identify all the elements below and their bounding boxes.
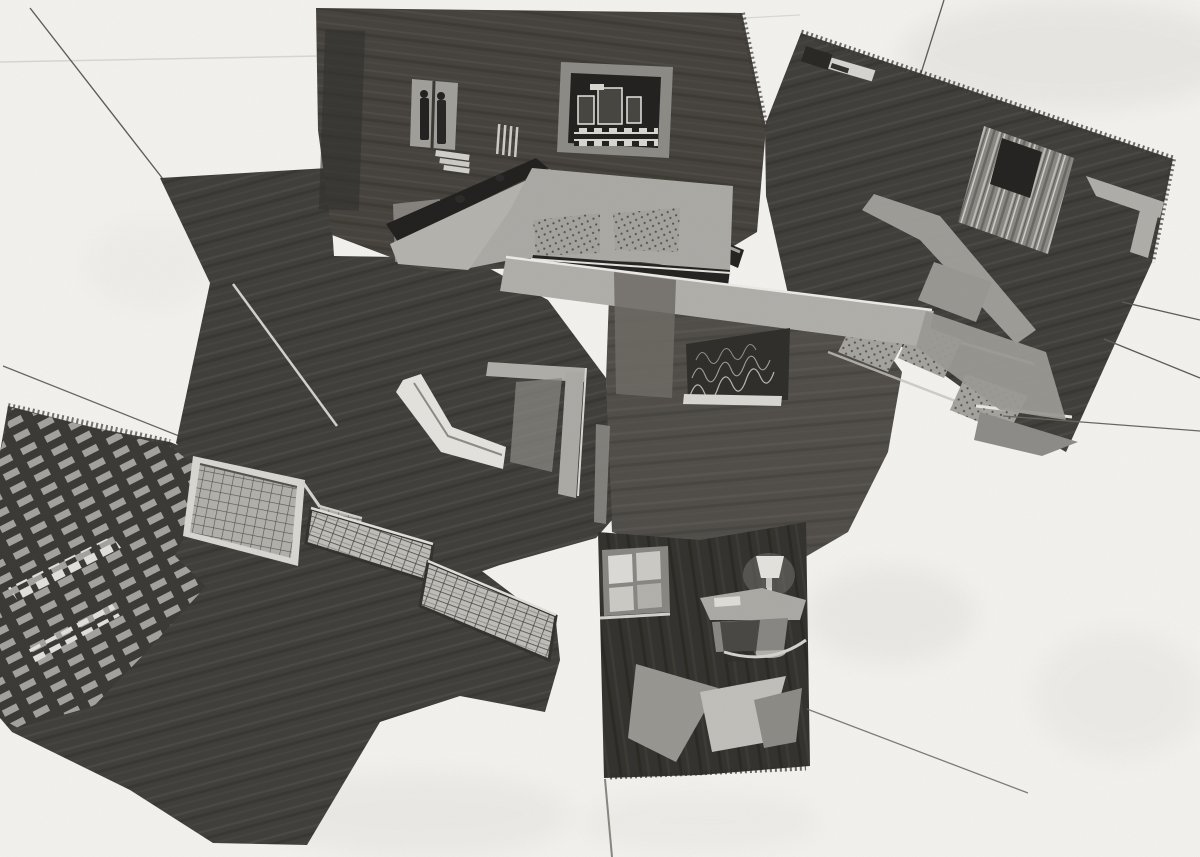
paper-grain-overlay xyxy=(0,0,1200,857)
artwork-canvas xyxy=(0,0,1200,857)
artwork-page: Mixed-media collage: fragments of interi… xyxy=(0,0,1200,857)
